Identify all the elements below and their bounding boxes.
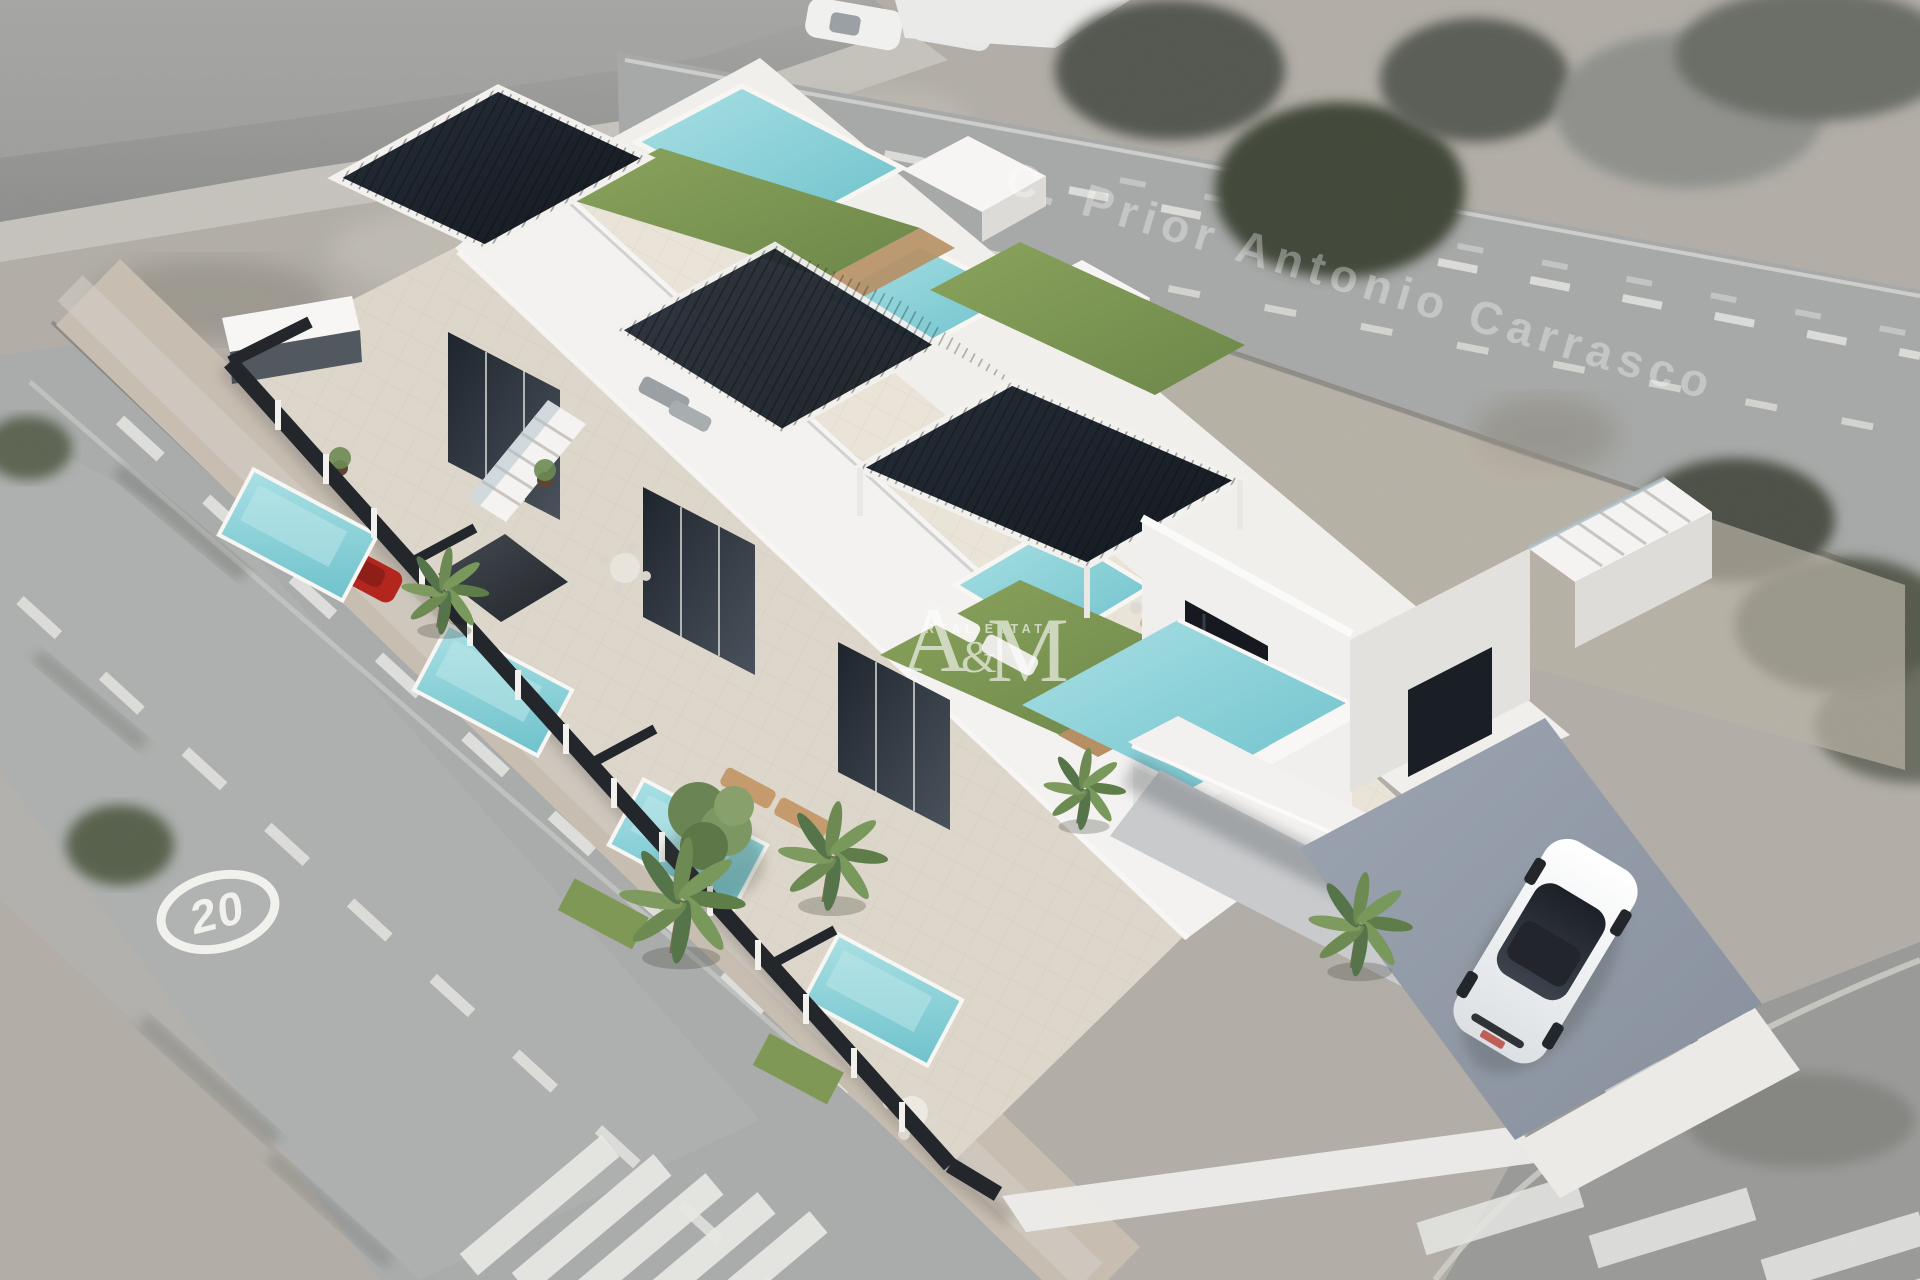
aerial-render-scene: 20 bbox=[0, 0, 1920, 1280]
scene-svg: 20 bbox=[0, 0, 1920, 1280]
